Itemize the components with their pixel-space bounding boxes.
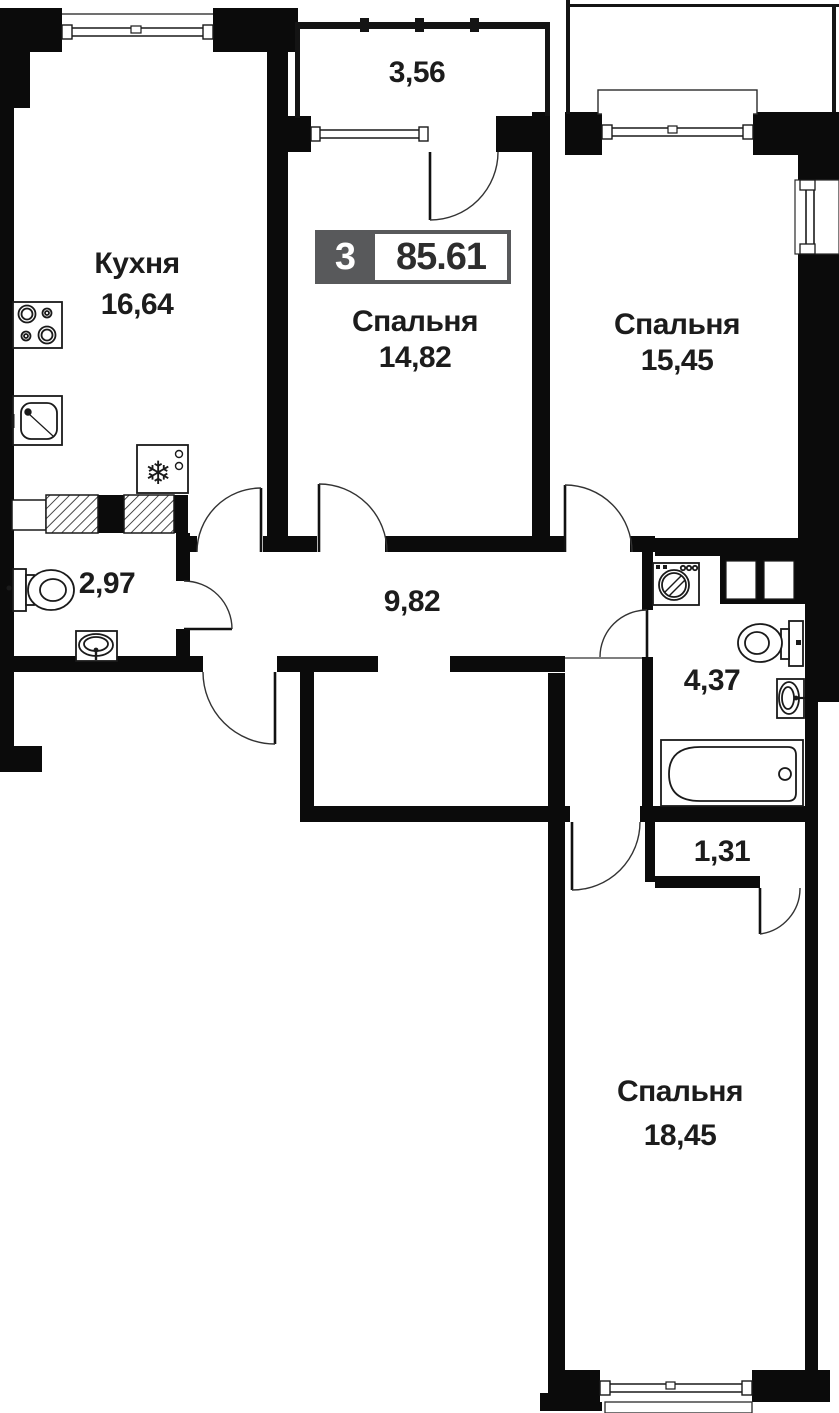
stove-icon — [13, 302, 62, 348]
floor-plan: ❄ — [0, 0, 839, 1413]
bedroom3-window — [600, 1370, 752, 1413]
bedroom2-door — [565, 485, 632, 552]
kitchen-area-label: 16,64 — [101, 290, 174, 320]
kitchen-sink-icon — [13, 396, 62, 445]
bedroom1-area-label: 14,82 — [379, 343, 452, 373]
wc-area-label: 2,97 — [79, 569, 135, 599]
kitchen-window — [62, 8, 213, 52]
bathroom-door — [600, 610, 647, 657]
balcony-door — [430, 152, 498, 220]
wc-door — [184, 581, 232, 629]
kitchen-name-label: Кухня — [94, 249, 179, 279]
wc-toilet-icon — [7, 569, 75, 611]
bedroom1-name-label: Спальня — [352, 307, 478, 337]
snowflake-glyph: ❄ — [145, 454, 172, 492]
total-area-badge: 85.61 — [375, 234, 507, 280]
washing-machine-icon — [653, 563, 699, 605]
bedroom2-top-window — [598, 90, 757, 155]
closet-door — [760, 888, 800, 934]
fridge-icon: ❄ — [137, 445, 188, 493]
bedroom3-area-label: 18,45 — [644, 1121, 717, 1151]
bathroom-toilet-icon — [738, 621, 803, 666]
bedroom3-door — [572, 822, 640, 890]
closet-area-label: 1,31 — [694, 837, 750, 867]
entrance-door — [203, 672, 275, 744]
kitchen-door — [197, 488, 261, 552]
hallway-area-label: 9,82 — [384, 587, 440, 617]
wc-sink-icon — [76, 631, 117, 661]
bedroom2-side-window — [795, 180, 839, 254]
rooms-count-badge: 3 — [315, 230, 375, 284]
floor-plan-drawing: ❄ — [0, 0, 839, 1413]
apartment-badge: 3 85.61 — [315, 230, 511, 284]
bedroom2-name-label: Спальня — [614, 310, 740, 340]
bedroom1-balcony-window — [311, 116, 428, 152]
bathroom-sink-icon — [777, 679, 805, 718]
walls — [0, 8, 839, 1411]
bedroom1-door — [319, 484, 387, 552]
balcony-area-label: 3,56 — [389, 58, 445, 88]
bedroom3-name-label: Спальня — [617, 1077, 743, 1107]
bedroom2-area-label: 15,45 — [641, 346, 714, 376]
bathroom-area-label: 4,37 — [684, 666, 740, 696]
bathtub-icon — [661, 740, 803, 806]
